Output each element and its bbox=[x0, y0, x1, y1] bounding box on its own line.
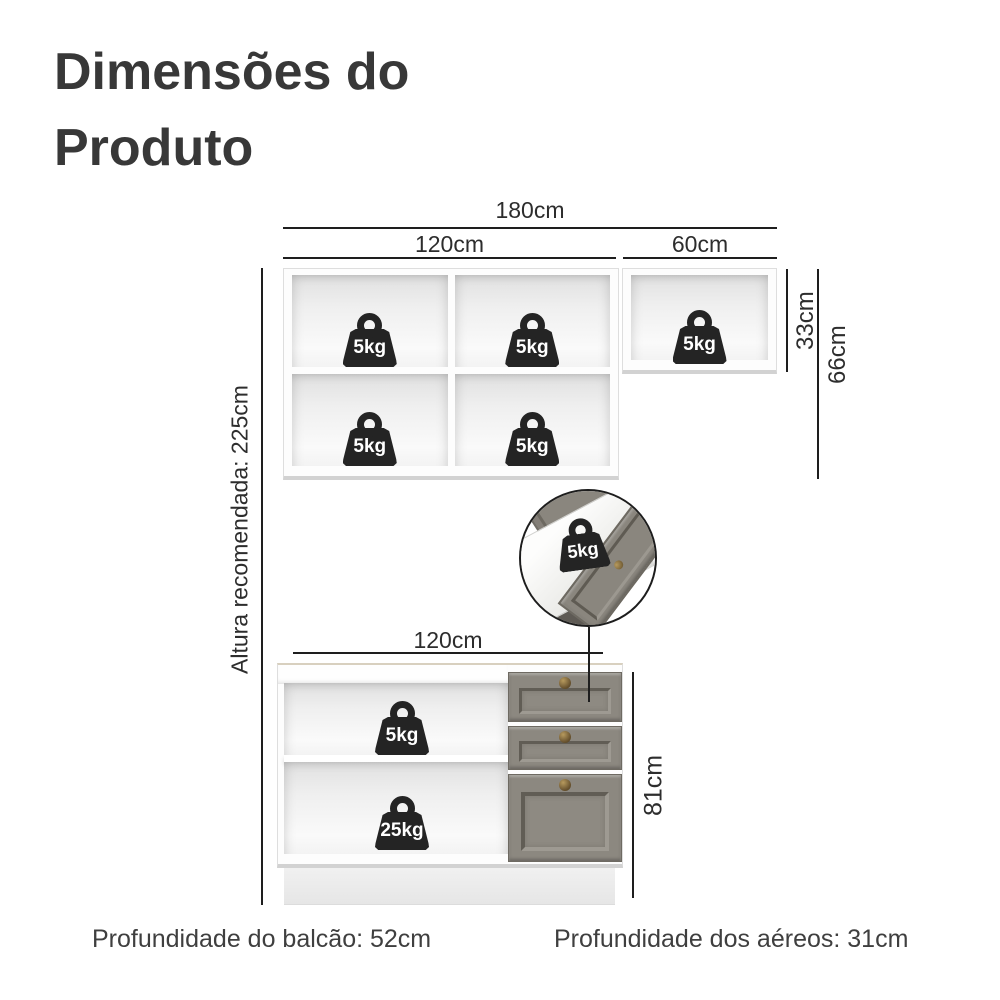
drawer-knob bbox=[559, 731, 571, 743]
page-title-line2: Produto bbox=[54, 110, 574, 186]
lower-height-label: 81cm bbox=[638, 672, 670, 898]
weight-label: 5kg bbox=[516, 436, 549, 458]
lower-width-label: 120cm bbox=[293, 627, 603, 654]
cabinet-compartment: 5kg bbox=[284, 683, 508, 755]
upper-height-66-line bbox=[817, 269, 819, 479]
lower-height-line bbox=[632, 672, 634, 898]
cabinet-top-rim bbox=[278, 665, 508, 684]
drawer-front-panel bbox=[521, 792, 609, 851]
drawer-middle bbox=[508, 726, 622, 770]
weight-label: 5kg bbox=[566, 539, 600, 564]
weight-icon: 5kg bbox=[375, 701, 429, 755]
weight-handle-ring bbox=[390, 796, 415, 821]
upper-cabinet-left-grid: 5kg 5kg 5kg 5kg bbox=[292, 275, 610, 466]
upper-cabinet-right: 5kg bbox=[622, 268, 777, 374]
weight-handle-ring bbox=[687, 310, 712, 335]
weight-label: 5kg bbox=[353, 337, 386, 359]
page-title: Dimensões do Produto bbox=[54, 34, 574, 187]
drawer-callout-circle: 5kg bbox=[519, 489, 657, 627]
weight-label: 5kg bbox=[353, 436, 386, 458]
weight-label: 25kg bbox=[380, 820, 423, 842]
counter-depth-note: Profundidade do balcão: 52cm bbox=[92, 925, 431, 954]
drawer-front-panel bbox=[519, 741, 611, 762]
upper-left-width-line bbox=[283, 257, 616, 259]
upper-cabinet-left: 5kg 5kg 5kg 5kg bbox=[283, 268, 619, 480]
cabinet-plinth bbox=[284, 866, 615, 905]
upper-cabinet-right-grid: 5kg bbox=[631, 275, 768, 360]
product-dimensions-page: { "title": {"line1": "Dimensões do", "li… bbox=[0, 0, 1000, 1000]
cabinet-compartment: 25kg bbox=[284, 762, 508, 854]
upper-height-33-line bbox=[786, 269, 788, 372]
weight-icon: 25kg bbox=[375, 796, 429, 850]
upper-left-width-label: 120cm bbox=[283, 231, 616, 258]
drawer-front-panel bbox=[519, 688, 611, 714]
weight-icon: 5kg bbox=[673, 310, 727, 364]
cabinet-compartment: 5kg bbox=[455, 374, 611, 466]
weight-icon: 5kg bbox=[505, 313, 559, 367]
lower-width-line bbox=[293, 652, 603, 654]
drawer-top bbox=[508, 672, 622, 722]
weight-handle-ring bbox=[390, 701, 415, 726]
drawer-knob bbox=[559, 779, 571, 791]
lower-open-section: 5kg 25kg bbox=[284, 683, 508, 854]
weight-label: 5kg bbox=[516, 337, 549, 359]
upper-right-width-label: 60cm bbox=[623, 231, 777, 258]
weight-icon: 5kg bbox=[343, 313, 397, 367]
recommended-height-line bbox=[261, 268, 263, 905]
cabinet-compartment: 5kg bbox=[292, 275, 448, 367]
wall-units-depth-note: Profundidade dos aéreos: 31cm bbox=[554, 925, 908, 954]
drawer-knob bbox=[559, 677, 571, 689]
weight-handle-ring bbox=[520, 412, 545, 437]
upper-total-width-line bbox=[283, 227, 777, 229]
callout-connector-line bbox=[588, 627, 590, 702]
drawer-stack bbox=[508, 672, 622, 862]
cabinet-shelf bbox=[284, 755, 508, 762]
weight-icon: 5kg bbox=[343, 412, 397, 466]
cabinet-compartment: 5kg bbox=[292, 374, 448, 466]
upper-right-width-line bbox=[623, 257, 777, 259]
weight-icon: 5kg bbox=[553, 515, 611, 573]
drawer-bottom bbox=[508, 774, 622, 862]
weight-label: 5kg bbox=[683, 334, 716, 356]
recommended-height-label: Altura recomendada: 225cm bbox=[225, 210, 255, 850]
cabinet-compartment: 5kg bbox=[455, 275, 611, 367]
cabinet-compartment: 5kg bbox=[631, 275, 768, 360]
page-title-line1: Dimensões do bbox=[54, 34, 574, 110]
weight-label: 5kg bbox=[386, 725, 419, 747]
weight-icon: 5kg bbox=[505, 412, 559, 466]
upper-total-width-label: 180cm bbox=[283, 197, 777, 224]
weight-handle-ring bbox=[520, 313, 545, 338]
upper-height-66-label: 66cm bbox=[822, 250, 854, 460]
lower-cabinet: 5kg 25kg bbox=[277, 663, 623, 868]
